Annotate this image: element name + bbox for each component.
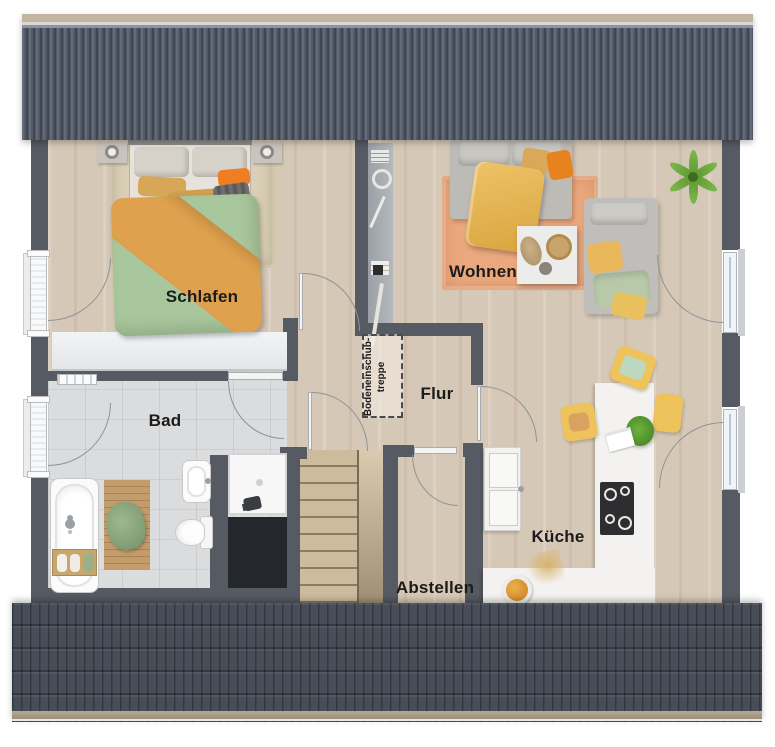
lamp-right xyxy=(260,145,274,159)
room-label-abstellen: Abstellen xyxy=(396,578,474,598)
woven-tray xyxy=(546,234,572,260)
fruit xyxy=(506,579,528,601)
wall-right-top xyxy=(722,140,740,250)
window-schlafen xyxy=(30,255,47,333)
wall-right-bottom xyxy=(722,490,740,607)
vase xyxy=(539,262,552,275)
chair-left-cushion xyxy=(568,412,590,433)
window-cap xyxy=(27,250,50,257)
staircase-treads xyxy=(300,450,357,607)
palm-center xyxy=(688,172,698,182)
cabinet-knob xyxy=(518,486,524,492)
room-label-kueche: Küche xyxy=(532,527,585,547)
nightstand-right xyxy=(252,141,282,163)
attic-stairs-label-line1: Bodeneinschub- xyxy=(362,335,375,419)
cooktop xyxy=(600,482,634,535)
wall-left-mid xyxy=(31,331,48,401)
nightstand-left xyxy=(97,141,127,163)
roof-band-bottom xyxy=(12,603,762,722)
roof-ridge-strip xyxy=(22,14,753,28)
shelf-stick-decor xyxy=(369,196,386,228)
shower-tray xyxy=(228,453,287,515)
shower-drain xyxy=(256,479,263,486)
caddy-towel-1 xyxy=(57,554,67,572)
sink-basin xyxy=(187,466,206,497)
lamp-left xyxy=(105,145,119,159)
dining-chair-left xyxy=(560,402,599,442)
door-leaf-bad xyxy=(228,372,283,380)
window-cap xyxy=(27,330,50,337)
shelf-black-box xyxy=(373,265,383,275)
window-bad xyxy=(30,401,47,475)
cabinet-door-upper xyxy=(489,453,518,488)
cabinet-door-lower xyxy=(489,490,518,526)
terrace-door-essen xyxy=(723,409,737,490)
wall-right-mid xyxy=(722,333,740,407)
shelf-ring-decor xyxy=(372,169,392,189)
roof-band-top xyxy=(22,14,753,140)
bed-duvet xyxy=(111,193,263,336)
kitchen-tall-cabinet xyxy=(484,447,521,531)
roof-fascia-strip xyxy=(12,711,762,719)
caddy-towel-2 xyxy=(70,554,80,572)
terrace-door-frame-wohnen xyxy=(738,249,745,336)
caddy-cloth-green xyxy=(83,554,94,572)
chaise-pillow-yellow xyxy=(586,240,624,274)
burner-1 xyxy=(604,488,617,501)
staircase-stringer xyxy=(357,450,383,607)
burner-4 xyxy=(618,516,632,530)
bathtub-faucet xyxy=(65,519,75,529)
wall-schlafen-wohnen xyxy=(355,140,368,330)
towel-radiator xyxy=(57,374,97,385)
terrace-door-wohnen xyxy=(723,252,737,333)
duvet-orange-blanket xyxy=(111,193,263,336)
floorplan: Bodeneinschub- treppe xyxy=(0,0,775,747)
wall-kueche-west xyxy=(463,443,483,457)
pillow-gray-left xyxy=(134,147,189,177)
terrace-door-frame-essen xyxy=(738,406,745,493)
coffee-table xyxy=(517,226,577,284)
chaise-back-cushion xyxy=(590,203,648,225)
attic-stairs-label-line2: treppe xyxy=(375,335,388,419)
burner-2 xyxy=(620,486,630,496)
burner-3 xyxy=(605,514,615,524)
chair-top-cushion xyxy=(618,354,647,381)
palm-plant xyxy=(663,150,723,210)
shelf-books xyxy=(371,150,389,163)
bathtub-caddy xyxy=(52,549,97,576)
window-cap xyxy=(27,471,50,478)
sofa-pillow-orange xyxy=(546,149,574,181)
window-cap xyxy=(27,396,50,403)
dining-chair-right xyxy=(652,393,684,434)
wall-left-top xyxy=(31,140,48,257)
sink-faucet xyxy=(205,478,211,484)
door-glass-line xyxy=(729,414,731,485)
wall-stair-west xyxy=(287,447,300,607)
room-label-bad: Bad xyxy=(149,411,182,431)
wall-flur-east xyxy=(471,336,483,385)
attic-stairs-label: Bodeneinschub- treppe xyxy=(362,335,404,419)
shelf-sideboard xyxy=(368,143,393,323)
room-label-flur: Flur xyxy=(421,384,454,404)
wardrobe xyxy=(52,332,287,371)
room-label-schlafen: Schlafen xyxy=(166,287,238,307)
room-label-wohnen: Wohnen xyxy=(449,262,517,282)
wall-left-bottom xyxy=(31,473,48,607)
toilet xyxy=(175,516,213,549)
door-glass-line xyxy=(729,257,731,328)
sink xyxy=(182,460,211,503)
fruit-bowl xyxy=(502,575,532,605)
shower-fixture xyxy=(243,495,262,511)
door-leaf-abstellen xyxy=(414,447,457,454)
chaise-sofa xyxy=(584,198,658,314)
toilet-bowl xyxy=(175,519,205,546)
